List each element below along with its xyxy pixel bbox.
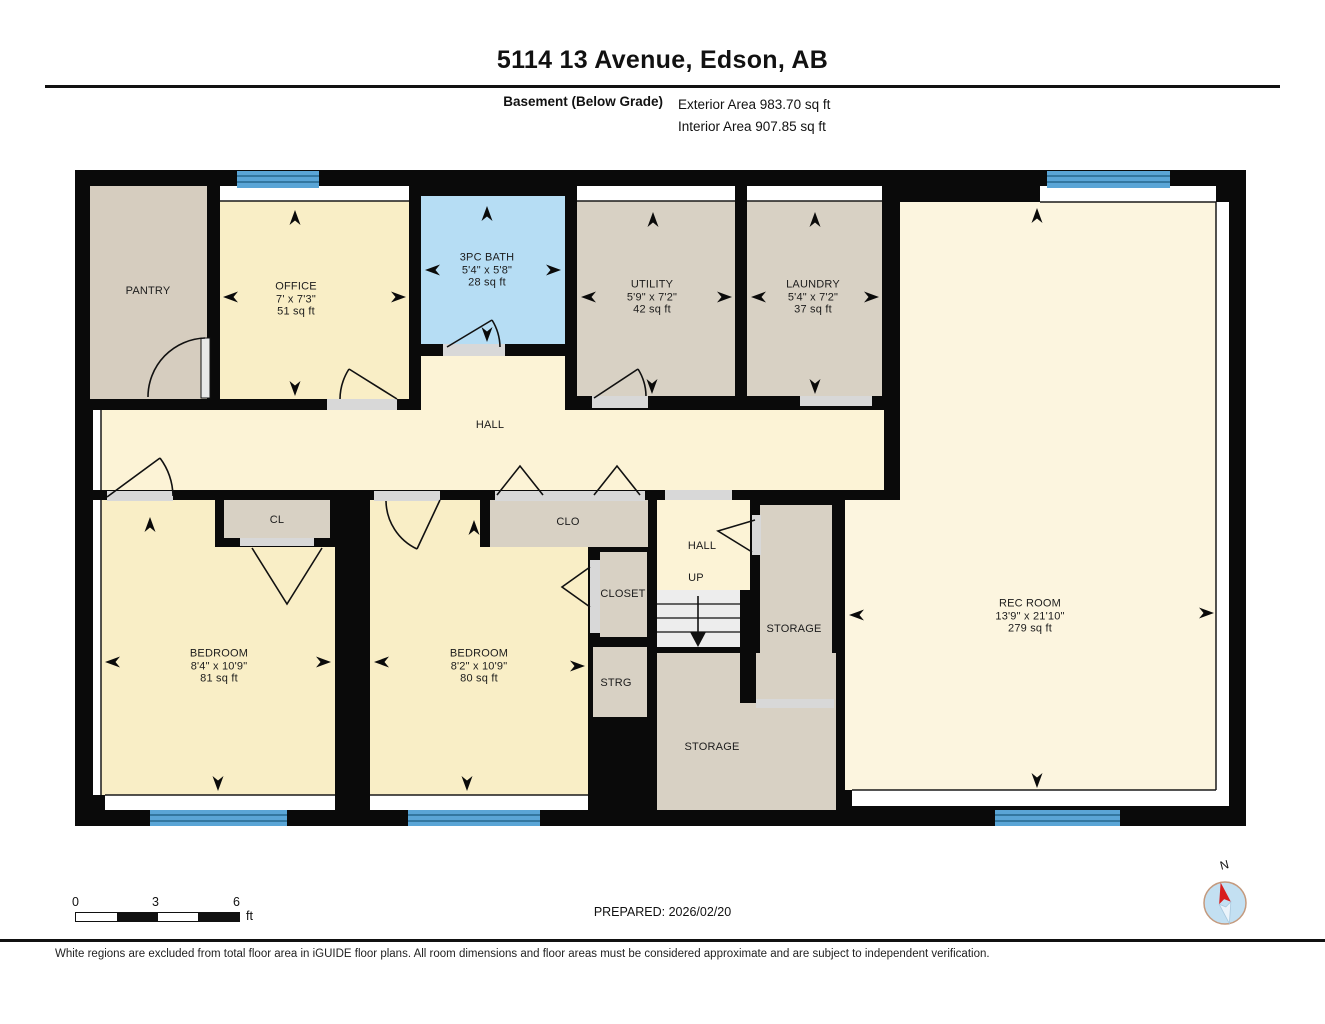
- window: [237, 171, 319, 188]
- room-label-bedroom1: BEDROOM 8'4" x 10'9" 81 sq ft: [190, 647, 248, 685]
- compass-icon: [1193, 869, 1257, 933]
- room-label-rec-room: REC ROOM 13'9" x 21'10" 279 sq ft: [995, 597, 1064, 635]
- floor-plan-drawing: [75, 170, 1246, 826]
- room-label-hall: HALL: [476, 419, 504, 432]
- disclaimer-text: White regions are excluded from total fl…: [55, 948, 1295, 960]
- window: [995, 810, 1120, 826]
- room-label-utility: UTILITY 5'9" x 7'2" 42 sq ft: [627, 278, 677, 316]
- room-label-clo: CLO: [556, 516, 579, 529]
- room-label-laundry: LAUNDRY 5'4" x 7'2" 37 sq ft: [786, 278, 840, 316]
- window: [150, 810, 287, 826]
- area-summary: Exterior Area 983.70 sq ft Interior Area…: [678, 94, 830, 138]
- stairs-up-label: UP: [688, 572, 704, 585]
- pantry-door-leaf: [201, 338, 210, 398]
- window: [1047, 171, 1170, 188]
- room-label-bath: 3PC BATH 5'4" x 5'8" 28 sq ft: [460, 251, 515, 289]
- footer-divider: [0, 939, 1325, 942]
- room-label-office: OFFICE 7' x 7'3" 51 sq ft: [275, 280, 317, 318]
- stairs: [657, 590, 740, 647]
- room-label-closet: CLOSET: [600, 588, 645, 601]
- prepared-date: PREPARED: 2026/02/20: [0, 905, 1325, 919]
- room-label-storage-lower: STORAGE: [685, 741, 740, 754]
- room-rec-fill-upper: [900, 202, 1216, 500]
- room-label-cl: CL: [270, 514, 284, 527]
- page-title: 5114 13 Avenue, Edson, AB: [0, 46, 1325, 75]
- interior-area: Interior Area 907.85 sq ft: [678, 116, 830, 138]
- window: [408, 810, 540, 826]
- room-label-strg: STRG: [600, 677, 631, 690]
- room-label-hall2: HALL: [688, 540, 716, 553]
- floor-label: Basement (Below Grade): [0, 94, 663, 109]
- header-divider: [45, 85, 1280, 88]
- exterior-area: Exterior Area 983.70 sq ft: [678, 94, 830, 116]
- floor-plan-page: 5114 13 Avenue, Edson, AB Basement (Belo…: [0, 0, 1325, 1024]
- room-rec-fill-lower: [845, 500, 1216, 790]
- room-label-storage-upper: STORAGE: [767, 623, 822, 636]
- room-label-bedroom2: BEDROOM 8'2" x 10'9" 80 sq ft: [450, 647, 508, 685]
- room-label-pantry: PANTRY: [126, 285, 171, 298]
